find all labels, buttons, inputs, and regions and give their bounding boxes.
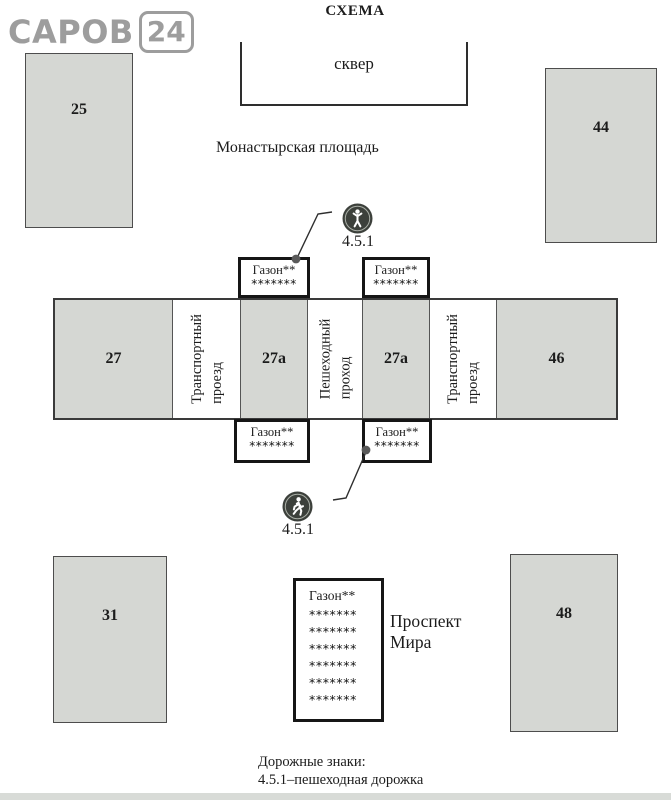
lawn-stars: *******: [309, 657, 381, 674]
building-27: 27: [55, 300, 173, 418]
lawn-label: Газон**: [237, 425, 307, 440]
lawn-stars: *******: [365, 278, 427, 291]
lawn-stars: *******: [309, 691, 381, 708]
legend-heading: Дорожные знаки:: [258, 754, 423, 772]
transport-passage-right: Транспортный проезд: [430, 300, 496, 418]
sarov24-logo: САРОВ 24: [8, 11, 194, 53]
building-25: 25: [25, 53, 133, 228]
lawn-stars: *******: [309, 623, 381, 640]
road-sign-top-number: 4.5.1: [334, 233, 382, 251]
building-48-number: 48: [556, 605, 572, 731]
building-46-number: 46: [549, 350, 565, 368]
legend: Дорожные знаки: 4.5.1–пешеходная дорожка: [258, 754, 423, 789]
pedestrian-passage: Пешеходный проход: [308, 300, 362, 418]
building-27a-right: 27а: [362, 300, 430, 418]
building-25-number: 25: [71, 101, 87, 227]
pedestrian-sign-bottom-icon: [282, 491, 313, 522]
scheme-canvas: СХЕМА САРОВ 24 сквер Монастырская площад…: [0, 0, 671, 800]
logo-badge: 24: [139, 11, 194, 53]
lawn-stars: *******: [309, 606, 381, 623]
building-44: 44: [545, 68, 657, 243]
lawn-label: Газон**: [365, 425, 429, 440]
building-27-number: 27: [106, 350, 122, 368]
lawn-stars: *******: [237, 440, 307, 453]
lawn-label: Газон**: [365, 263, 427, 278]
scan-artifact-strip: [0, 793, 671, 800]
park-outline: сквер: [240, 42, 468, 106]
building-27a-right-number: 27а: [384, 350, 408, 368]
lawn-stars: *******: [309, 674, 381, 691]
building-46: 46: [496, 300, 616, 418]
lawn-box-bottom-left: Газон** *******: [234, 419, 310, 463]
road-sign-top: [342, 203, 373, 234]
building-48: 48: [510, 554, 618, 732]
building-31: 31: [53, 556, 167, 723]
lawn-label: Газон**: [309, 588, 381, 604]
lawn-box-top-left: Газон** *******: [238, 257, 310, 298]
lawn-label: Газон**: [241, 263, 307, 278]
avenue-label: Проспект Мира: [390, 611, 461, 653]
building-27a-left: 27а: [240, 300, 308, 418]
road-sign-bottom-number: 4.5.1: [274, 521, 322, 539]
buildings-band: 27 Транспортный проезд 27а Пешеходный пр…: [53, 298, 618, 420]
transport-passage-label: Транспортный проезд: [443, 314, 483, 404]
building-27a-left-number: 27а: [262, 350, 286, 368]
transport-passage-label: Транспортный проезд: [187, 314, 227, 404]
building-44-number: 44: [593, 119, 609, 242]
pedestrian-sign-top-icon: [342, 203, 373, 234]
transport-passage-left: Транспортный проезд: [173, 300, 240, 418]
park-label: сквер: [334, 54, 374, 73]
lawn-stars: *******: [309, 640, 381, 657]
square-label: Монастырская площадь: [216, 139, 379, 157]
lawn-stars: *******: [365, 440, 429, 453]
legend-entry: 4.5.1–пешеходная дорожка: [258, 772, 423, 790]
building-31-number: 31: [102, 607, 118, 722]
lawn-box-avenue: Газон** ******* ******* ******* ******* …: [293, 578, 384, 722]
lawn-box-bottom-right: Газон** *******: [362, 419, 432, 463]
lawn-box-top-right: Газон** *******: [362, 257, 430, 298]
lawn-stars: *******: [241, 278, 307, 291]
pedestrian-passage-label: Пешеходный проход: [315, 319, 355, 400]
logo-text: САРОВ: [8, 13, 134, 51]
road-sign-bottom: [282, 491, 313, 522]
